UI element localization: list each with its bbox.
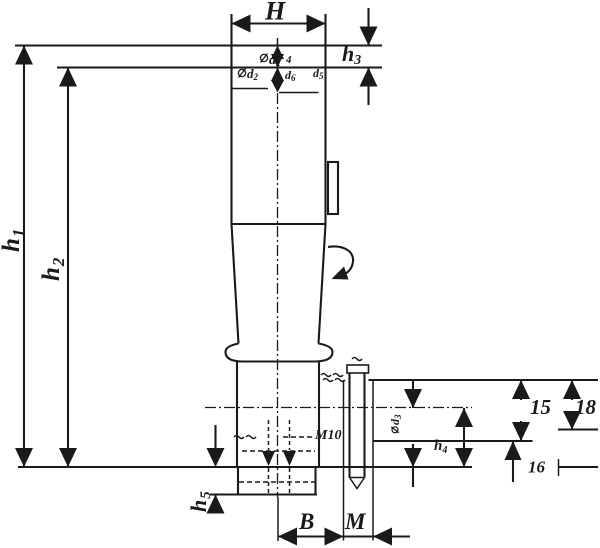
svg-text:M: M [344,509,367,534]
svg-text:B: B [298,509,314,534]
svg-text:18: 18 [575,395,597,419]
svg-text:16: 16 [528,458,546,477]
svg-text:H: H [264,0,286,26]
svg-text:15: 15 [530,395,551,419]
svg-text:M10: M10 [314,428,341,443]
svg-text:4: 4 [285,54,292,66]
